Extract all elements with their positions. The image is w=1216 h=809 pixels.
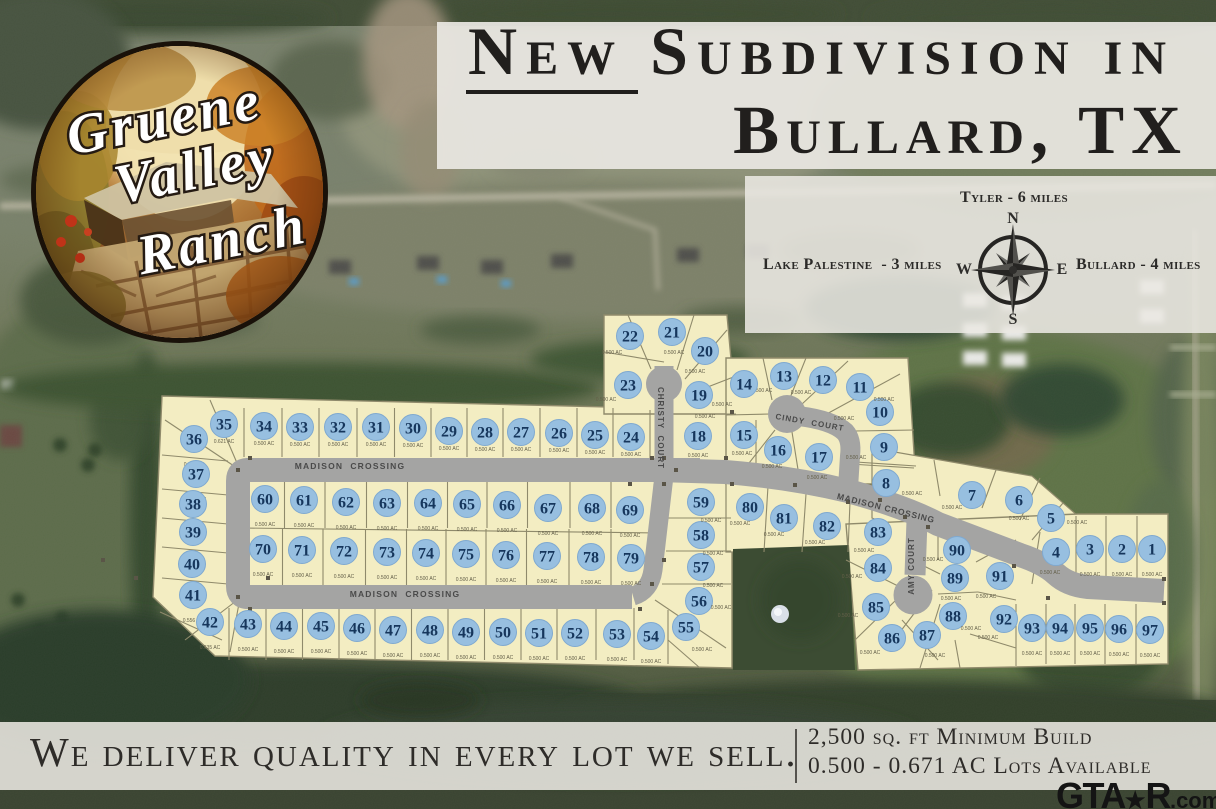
svg-text:0.500 AC: 0.500 AC — [712, 402, 733, 408]
svg-text:34: 34 — [256, 419, 272, 436]
svg-text:44: 44 — [276, 619, 292, 636]
svg-text:0.635 AC: 0.635 AC — [200, 645, 221, 651]
svg-text:0.500 AC: 0.500 AC — [711, 605, 732, 611]
svg-text:0.500 AC: 0.500 AC — [925, 653, 946, 659]
svg-text:73: 73 — [379, 545, 395, 562]
svg-text:7: 7 — [968, 488, 976, 505]
svg-text:0.500 AC: 0.500 AC — [377, 575, 398, 581]
svg-text:64: 64 — [420, 496, 436, 513]
svg-text:0.500 AC: 0.500 AC — [902, 491, 923, 497]
svg-text:53: 53 — [609, 627, 625, 644]
svg-text:0.500 AC: 0.500 AC — [383, 653, 404, 659]
svg-text:0.500 AC: 0.500 AC — [621, 581, 642, 587]
svg-text:30: 30 — [405, 421, 421, 438]
svg-text:45: 45 — [313, 619, 329, 636]
svg-text:59: 59 — [693, 495, 709, 512]
svg-text:5: 5 — [1047, 511, 1055, 528]
svg-text:21: 21 — [664, 325, 680, 342]
svg-text:0.500 AC: 0.500 AC — [254, 441, 275, 447]
svg-text:12: 12 — [815, 373, 831, 390]
svg-text:0.500 AC: 0.500 AC — [496, 578, 517, 584]
svg-text:23: 23 — [620, 378, 636, 395]
svg-text:0.500 AC: 0.500 AC — [941, 596, 962, 602]
svg-text:49: 49 — [458, 625, 474, 642]
svg-text:32: 32 — [330, 420, 346, 437]
svg-text:83: 83 — [870, 525, 886, 542]
svg-text:0.500 AC: 0.500 AC — [457, 527, 478, 533]
svg-text:39: 39 — [185, 525, 201, 542]
svg-text:0.500 AC: 0.500 AC — [664, 350, 685, 356]
svg-text:65: 65 — [459, 497, 475, 514]
svg-text:0.500 AC: 0.500 AC — [538, 531, 559, 537]
svg-text:94: 94 — [1052, 621, 1068, 638]
svg-text:0.500 AC: 0.500 AC — [347, 651, 368, 657]
svg-text:0.500 AC: 0.500 AC — [456, 577, 477, 583]
svg-text:85: 85 — [868, 600, 884, 617]
svg-text:67: 67 — [540, 501, 556, 518]
svg-text:0.500 AC: 0.500 AC — [1067, 520, 1088, 526]
svg-text:0.500 AC: 0.500 AC — [764, 532, 785, 538]
svg-text:46: 46 — [349, 621, 365, 638]
svg-text:0.500 AC: 0.500 AC — [692, 647, 713, 653]
svg-text:96: 96 — [1111, 622, 1127, 639]
svg-text:20: 20 — [697, 344, 713, 361]
svg-text:61: 61 — [296, 493, 312, 510]
svg-text:10: 10 — [872, 405, 888, 422]
svg-text:97: 97 — [1142, 623, 1158, 640]
svg-text:0.500 AC: 0.500 AC — [529, 656, 550, 662]
svg-text:0.500 AC: 0.500 AC — [549, 448, 570, 454]
svg-text:0.500 AC: 0.500 AC — [805, 540, 826, 546]
svg-text:95: 95 — [1082, 621, 1098, 638]
svg-text:0.500 AC: 0.500 AC — [294, 523, 315, 529]
svg-text:57: 57 — [693, 560, 709, 577]
svg-text:86: 86 — [884, 631, 900, 648]
svg-text:0.500 AC: 0.500 AC — [497, 528, 518, 534]
svg-text:0.500 AC: 0.500 AC — [274, 649, 295, 655]
svg-text:71: 71 — [294, 543, 310, 560]
svg-text:82: 82 — [819, 519, 835, 536]
svg-text:0.500 AC: 0.500 AC — [641, 659, 662, 665]
svg-text:15: 15 — [736, 428, 752, 445]
svg-text:35: 35 — [216, 417, 232, 434]
svg-text:N: N — [1007, 210, 1019, 227]
svg-text:0.500 AC: 0.500 AC — [807, 475, 828, 481]
svg-text:55: 55 — [678, 620, 694, 637]
svg-text:33: 33 — [292, 420, 308, 437]
svg-text:0.500 AC: 0.500 AC — [1109, 652, 1130, 658]
svg-text:0.500 AC: 0.500 AC — [418, 526, 439, 532]
svg-text:0.500 AC: 0.500 AC — [439, 446, 460, 452]
svg-text:13: 13 — [776, 369, 792, 386]
svg-text:0.500 AC: 0.500 AC — [688, 453, 709, 459]
svg-text:43: 43 — [240, 617, 256, 634]
svg-text:41: 41 — [185, 588, 201, 605]
svg-text:89: 89 — [947, 571, 963, 588]
svg-text:0.500 AC: 0.500 AC — [1022, 651, 1043, 657]
svg-text:0.500 AC: 0.500 AC — [701, 518, 722, 524]
svg-text:25: 25 — [587, 428, 603, 445]
svg-text:68: 68 — [584, 501, 600, 518]
svg-text:27: 27 — [513, 425, 529, 442]
svg-text:78: 78 — [583, 550, 599, 567]
svg-text:0.500 AC: 0.500 AC — [834, 416, 855, 422]
svg-text:E: E — [1057, 261, 1068, 278]
svg-text:22: 22 — [622, 329, 638, 346]
svg-text:0.500 AC: 0.500 AC — [1050, 651, 1071, 657]
svg-text:0.500 AC: 0.500 AC — [838, 613, 859, 619]
svg-text:W: W — [956, 261, 972, 278]
svg-text:S: S — [1009, 311, 1018, 328]
svg-text:0.500 AC: 0.500 AC — [961, 626, 982, 632]
svg-text:79: 79 — [623, 551, 639, 568]
svg-text:48: 48 — [422, 623, 438, 640]
svg-text:AMY COURT: AMY COURT — [907, 537, 916, 594]
svg-text:0.500 AC: 0.500 AC — [703, 551, 724, 557]
svg-text:8: 8 — [882, 476, 890, 493]
svg-text:80: 80 — [742, 500, 758, 517]
svg-text:28: 28 — [477, 425, 493, 442]
svg-text:6: 6 — [1015, 493, 1023, 510]
svg-text:0.500 AC: 0.500 AC — [596, 397, 617, 403]
svg-text:38: 38 — [185, 497, 201, 514]
svg-text:CHRISTY COURT: CHRISTY COURT — [656, 387, 665, 469]
svg-text:0.500 AC: 0.500 AC — [253, 572, 274, 578]
svg-text:17: 17 — [811, 450, 827, 467]
svg-text:0.500 AC: 0.500 AC — [1142, 572, 1163, 578]
svg-text:0.500 AC: 0.500 AC — [1009, 516, 1030, 522]
svg-text:0.500 AC: 0.500 AC — [685, 369, 706, 375]
svg-text:72: 72 — [336, 544, 352, 561]
svg-text:42: 42 — [202, 615, 218, 632]
svg-text:0.500 AC: 0.500 AC — [621, 452, 642, 458]
svg-text:0.500 AC: 0.500 AC — [1080, 651, 1101, 657]
svg-text:0.500 AC: 0.500 AC — [416, 576, 437, 582]
svg-text:2: 2 — [1118, 542, 1126, 559]
svg-text:0.500 AC: 0.500 AC — [607, 657, 628, 663]
svg-text:29: 29 — [441, 424, 457, 441]
svg-text:0.500 AC: 0.500 AC — [703, 583, 724, 589]
svg-text:0.500 AC: 0.500 AC — [978, 635, 999, 641]
svg-text:63: 63 — [379, 496, 395, 513]
svg-text:87: 87 — [919, 628, 935, 645]
svg-text:MADISON CROSSING: MADISON CROSSING — [295, 461, 406, 471]
svg-text:0.500 AC: 0.500 AC — [475, 447, 496, 453]
svg-text:90: 90 — [949, 543, 965, 560]
svg-text:69: 69 — [622, 503, 638, 520]
svg-text:60: 60 — [257, 492, 273, 509]
svg-text:0.500 AC: 0.500 AC — [420, 653, 441, 659]
svg-text:0.500 AC: 0.500 AC — [290, 442, 311, 448]
svg-text:0.500 AC: 0.500 AC — [493, 655, 514, 661]
svg-text:0.500 AC: 0.500 AC — [1140, 653, 1161, 659]
svg-text:24: 24 — [623, 430, 639, 447]
svg-text:50: 50 — [495, 625, 511, 642]
svg-text:66: 66 — [499, 498, 515, 515]
svg-text:0.500 AC: 0.500 AC — [585, 450, 606, 456]
svg-text:40: 40 — [184, 557, 200, 574]
svg-text:0.500 AC: 0.500 AC — [1112, 572, 1133, 578]
svg-text:0.500 AC: 0.500 AC — [791, 390, 812, 396]
svg-text:0.500 AC: 0.500 AC — [730, 521, 751, 527]
svg-text:47: 47 — [385, 623, 401, 640]
svg-text:84: 84 — [870, 561, 886, 578]
svg-text:0.500 AC: 0.500 AC — [762, 464, 783, 470]
svg-text:0.500 AC: 0.500 AC — [336, 525, 357, 531]
svg-text:19: 19 — [691, 388, 707, 405]
svg-text:36: 36 — [186, 432, 202, 449]
svg-text:70: 70 — [255, 542, 271, 559]
svg-text:0.500 AC: 0.500 AC — [238, 647, 259, 653]
svg-text:0.500 AC: 0.500 AC — [1040, 570, 1061, 576]
svg-text:62: 62 — [338, 495, 354, 512]
svg-text:0.500 AC: 0.500 AC — [403, 443, 424, 449]
svg-text:92: 92 — [996, 612, 1012, 629]
svg-text:0.500 AC: 0.500 AC — [334, 574, 355, 580]
svg-text:37: 37 — [188, 467, 204, 484]
svg-text:11: 11 — [852, 380, 867, 397]
svg-text:0.500 AC: 0.500 AC — [565, 656, 586, 662]
svg-text:91: 91 — [992, 569, 1008, 586]
svg-text:51: 51 — [531, 626, 547, 643]
svg-text:0.500 AC: 0.500 AC — [976, 594, 997, 600]
svg-text:4: 4 — [1052, 545, 1060, 562]
svg-text:3: 3 — [1086, 542, 1094, 559]
svg-text:0.500 AC: 0.500 AC — [732, 451, 753, 457]
svg-text:26: 26 — [551, 426, 567, 443]
svg-text:0.500 AC: 0.500 AC — [620, 533, 641, 539]
svg-text:58: 58 — [693, 528, 709, 545]
svg-text:0.500 AC: 0.500 AC — [311, 649, 332, 655]
svg-text:16: 16 — [770, 443, 786, 460]
svg-text:1: 1 — [1148, 542, 1156, 559]
svg-text:76: 76 — [498, 548, 514, 565]
svg-text:MADISON CROSSING: MADISON CROSSING — [350, 589, 461, 599]
svg-text:0.500 AC: 0.500 AC — [581, 580, 602, 586]
svg-text:0.500 AC: 0.500 AC — [846, 455, 867, 461]
svg-text:0.500 AC: 0.500 AC — [456, 655, 477, 661]
svg-text:18: 18 — [690, 429, 706, 446]
svg-text:0.500 AC: 0.500 AC — [582, 531, 603, 537]
svg-text:52: 52 — [567, 626, 583, 643]
svg-text:0.500 AC: 0.500 AC — [511, 447, 532, 453]
svg-text:81: 81 — [776, 511, 792, 528]
svg-text:14: 14 — [736, 377, 752, 394]
svg-text:88: 88 — [945, 609, 961, 626]
svg-text:0.500 AC: 0.500 AC — [942, 505, 963, 511]
svg-text:0.500 AC: 0.500 AC — [377, 526, 398, 532]
svg-text:9: 9 — [880, 440, 888, 457]
svg-text:0.500 AC: 0.500 AC — [602, 350, 623, 356]
svg-text:93: 93 — [1024, 621, 1040, 638]
svg-text:0.500 AC: 0.500 AC — [292, 573, 313, 579]
svg-text:0.500 AC: 0.500 AC — [1080, 572, 1101, 578]
svg-text:77: 77 — [539, 549, 555, 566]
svg-text:54: 54 — [643, 629, 659, 646]
svg-text:31: 31 — [368, 420, 384, 437]
svg-text:0.500 AC: 0.500 AC — [854, 548, 875, 554]
svg-text:75: 75 — [458, 547, 474, 564]
svg-text:0.500 AC: 0.500 AC — [695, 414, 716, 420]
svg-text:0.500 AC: 0.500 AC — [328, 442, 349, 448]
svg-text:0.500 AC: 0.500 AC — [537, 579, 558, 585]
svg-text:0.500 AC: 0.500 AC — [874, 397, 895, 403]
svg-text:0.500 AC: 0.500 AC — [923, 557, 944, 563]
svg-text:74: 74 — [418, 546, 434, 563]
svg-text:0.500 AC: 0.500 AC — [860, 650, 881, 656]
svg-text:0.621 AC: 0.621 AC — [214, 439, 235, 445]
svg-text:0.500 AC: 0.500 AC — [366, 442, 387, 448]
svg-text:0.500 AC: 0.500 AC — [255, 522, 276, 528]
svg-text:56: 56 — [691, 594, 707, 611]
svg-text:0.500 AC: 0.500 AC — [842, 574, 863, 580]
